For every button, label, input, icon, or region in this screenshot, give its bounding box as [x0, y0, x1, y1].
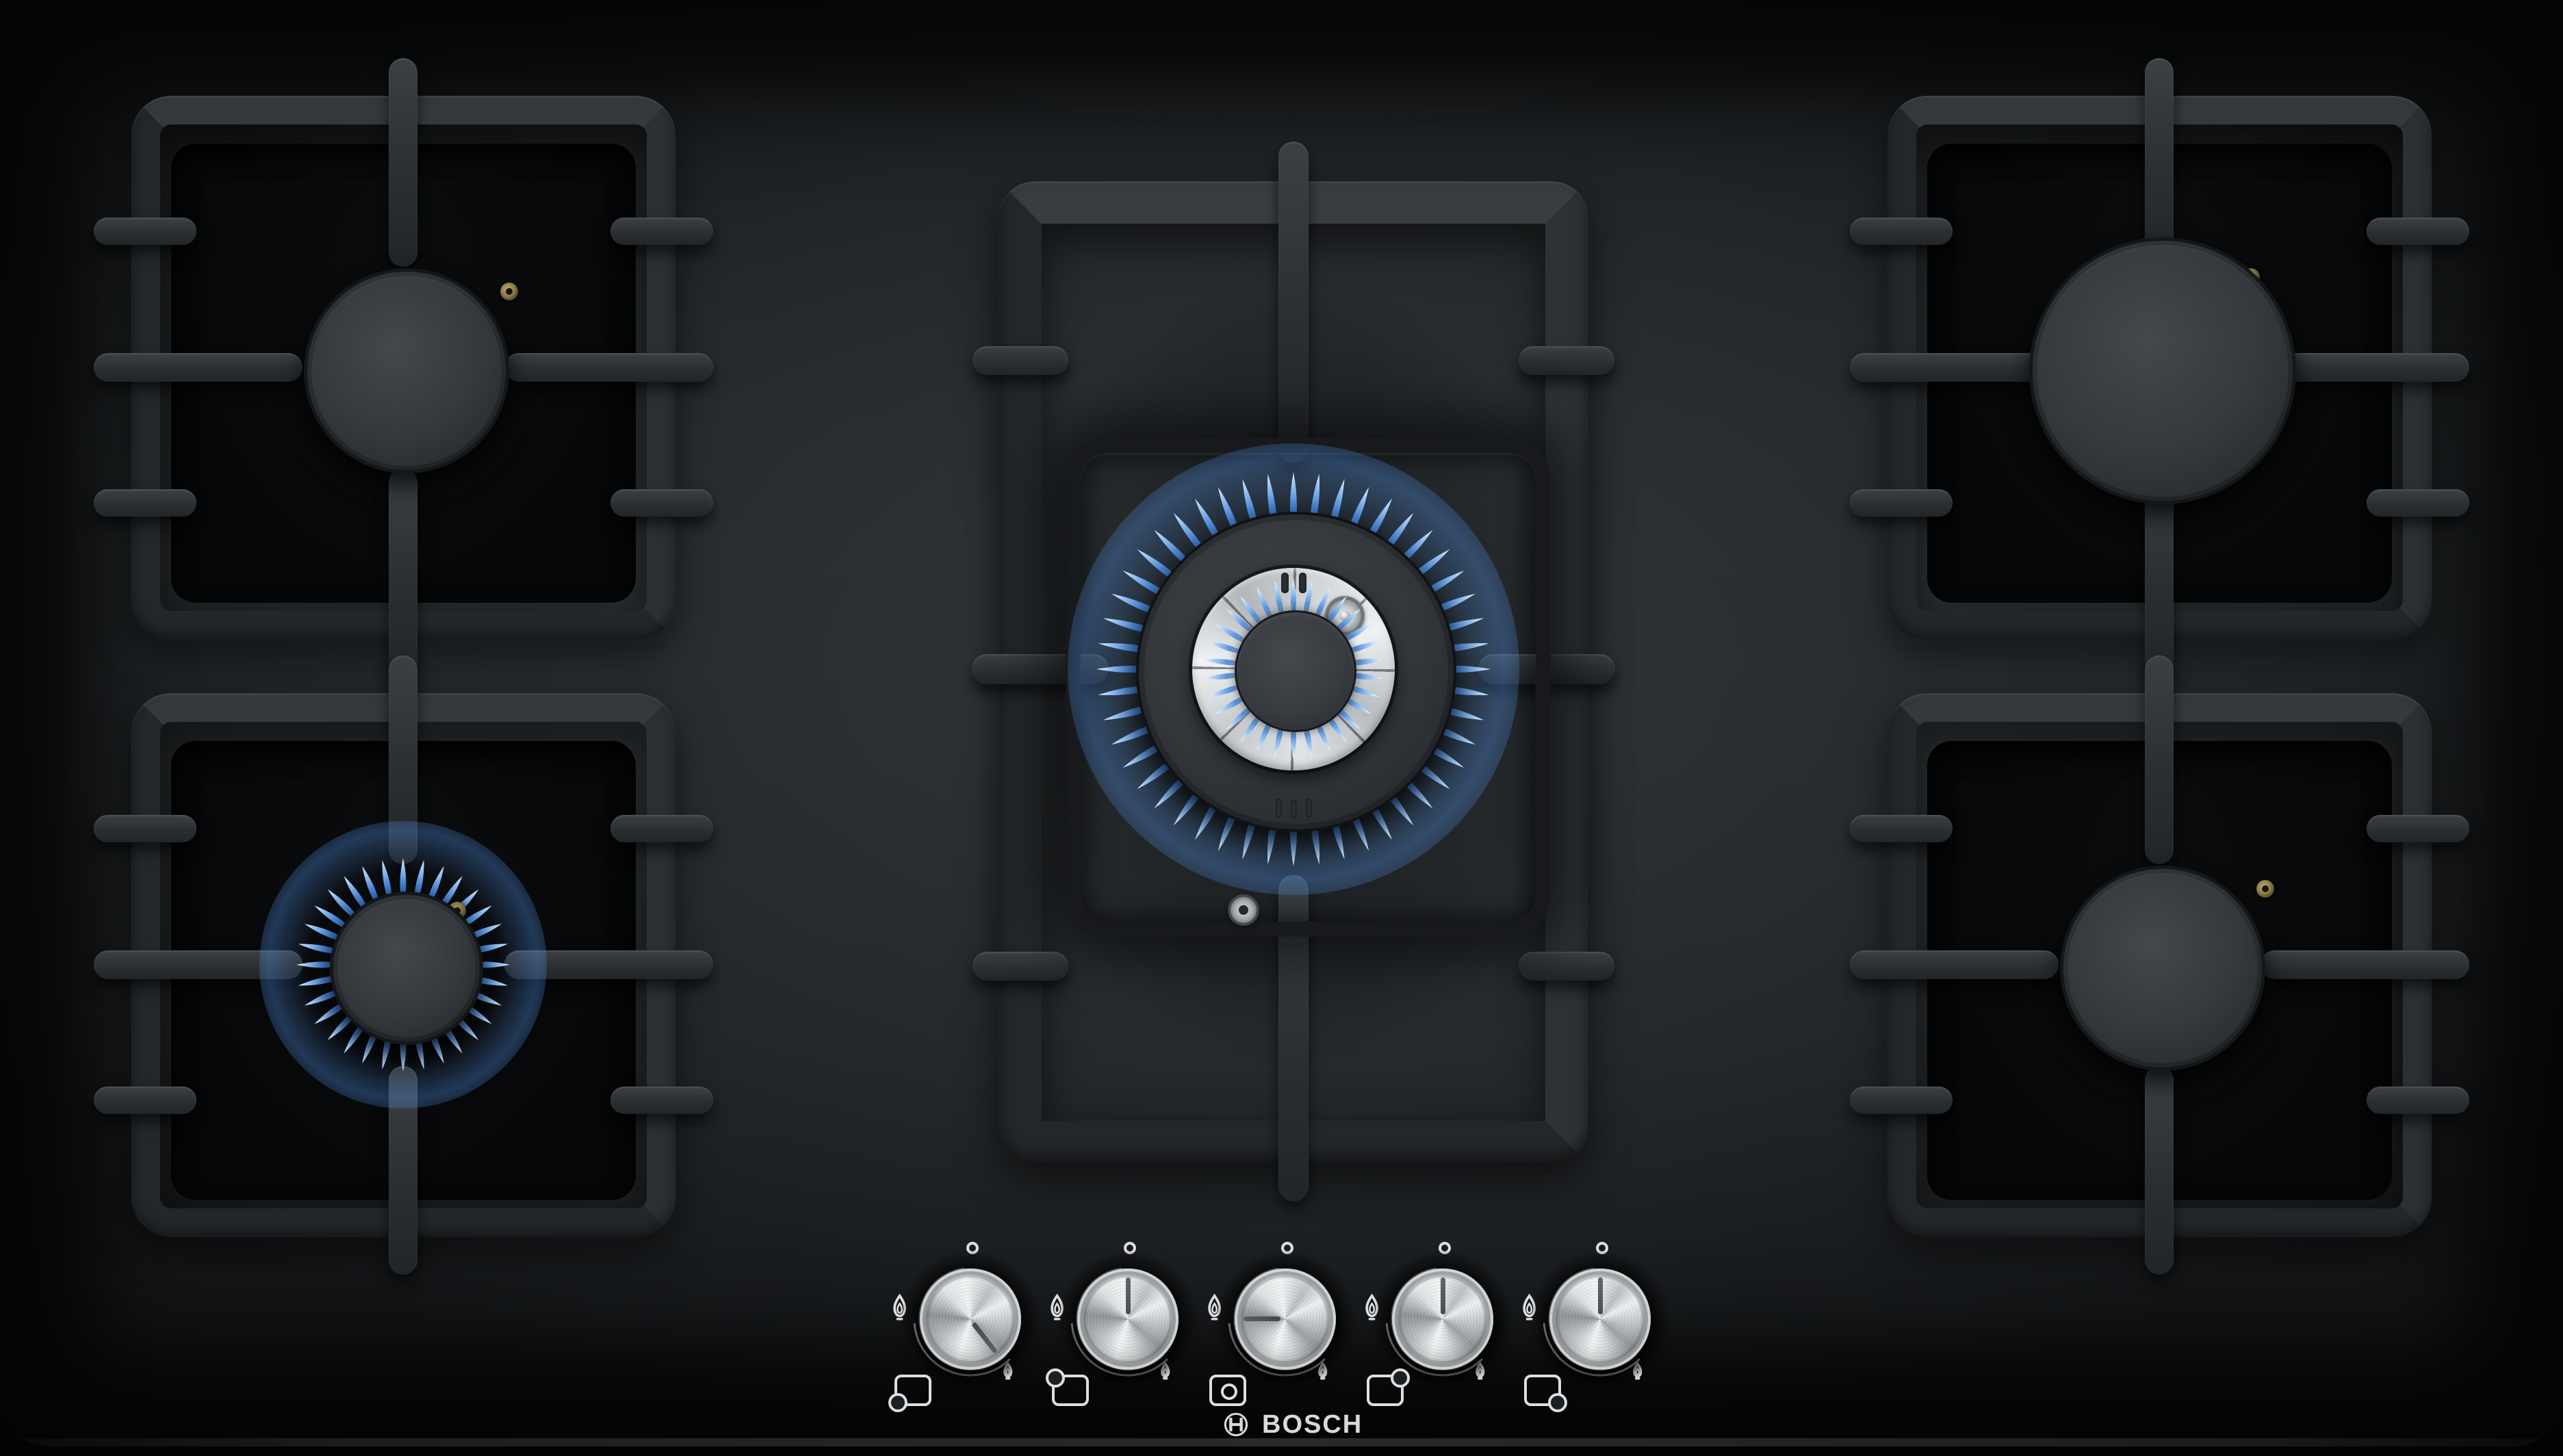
grate-foot	[94, 1087, 196, 1114]
knob-indicator	[1598, 1277, 1603, 1314]
grate-front-left	[131, 693, 675, 1237]
grate-foot	[2367, 218, 2469, 245]
burner-cap-front-left	[330, 892, 483, 1045]
bosch-wordmark: BOSCH	[1262, 1411, 1363, 1438]
burner-position-icon-front-left	[894, 1375, 931, 1406]
control-knob-back-left[interactable]	[1077, 1269, 1179, 1370]
grate-foot	[1519, 952, 1614, 980]
control-knob-front-left[interactable]	[920, 1269, 1021, 1370]
burner-cap-back-right	[2029, 237, 2296, 504]
position-dot	[1221, 1383, 1237, 1400]
position-dot	[888, 1393, 907, 1412]
crown-notch	[1291, 800, 1297, 819]
grate-foot	[610, 489, 713, 517]
grate-foot	[94, 489, 196, 517]
position-dot	[1548, 1393, 1567, 1412]
grate-foot	[1519, 346, 1614, 375]
grate-foot	[973, 346, 1068, 375]
spark-igniter-icon	[1228, 894, 1259, 926]
knob-indicator	[1441, 1277, 1445, 1314]
grate-bar	[1850, 353, 2059, 382]
grate-bar	[1278, 142, 1309, 463]
grate-foot	[2367, 815, 2469, 842]
center-wok-zone	[999, 181, 1588, 1163]
knob-indicator	[972, 1321, 999, 1353]
grate-foot	[2367, 489, 2469, 517]
burner-position-icon-back-right	[1367, 1375, 1404, 1406]
burner-cap-front-right	[2060, 866, 2265, 1071]
igniter-icon	[2256, 880, 2274, 898]
knob-unit-back-right	[1354, 1230, 1532, 1408]
knob-indicator	[1126, 1277, 1131, 1314]
grate-foot	[973, 952, 1068, 980]
grate-foot	[1850, 1087, 1953, 1114]
burner-position-icon-back-left	[1052, 1375, 1089, 1406]
grate-foot	[1850, 815, 1953, 842]
grate-bar	[389, 58, 417, 267]
grate-bar	[2145, 58, 2174, 267]
igniter-icon	[500, 283, 518, 300]
grate-back-right	[1888, 96, 2432, 640]
crown-notch	[1276, 798, 1282, 818]
burner-position-icon-front-right	[1524, 1375, 1561, 1406]
burner-position-icon-center	[1209, 1375, 1246, 1406]
hob-glass-surface: BOSCH	[0, 0, 2563, 1446]
position-dot	[1391, 1368, 1410, 1388]
grate-foot	[94, 218, 196, 245]
grate-bar	[94, 353, 302, 382]
knob-indicator	[1244, 1317, 1280, 1322]
grate-foot	[610, 218, 713, 245]
position-dot	[1046, 1368, 1065, 1388]
grate-bar	[389, 469, 417, 677]
grate-bar	[2145, 1066, 2174, 1275]
knob-unit-front-left	[881, 1230, 1059, 1408]
grate-foot	[1850, 218, 1953, 245]
control-knob-center[interactable]	[1235, 1269, 1336, 1370]
grate-foot	[610, 1087, 713, 1114]
control-knob-back-right[interactable]	[1392, 1269, 1493, 1370]
crown-notch	[1306, 798, 1312, 818]
grate-foot	[610, 815, 713, 842]
grate-front-right	[1888, 693, 2432, 1237]
grate-foot	[94, 815, 196, 842]
control-knob-front-right[interactable]	[1549, 1269, 1651, 1370]
wok-burner-cap	[1235, 610, 1356, 732]
grate-back-left	[131, 96, 675, 640]
grate-foot	[1850, 489, 1953, 517]
grate-bar	[2261, 950, 2469, 979]
burner-cap-back-left	[304, 268, 509, 473]
knob-unit-front-right	[1511, 1230, 1689, 1408]
grate-bar	[1850, 950, 2059, 979]
grate-bar	[504, 353, 713, 382]
knob-unit-back-left	[1039, 1230, 1217, 1408]
bosch-logo: BOSCH	[1222, 1411, 1363, 1438]
grate-bar	[2145, 655, 2174, 864]
knob-unit-center	[1196, 1230, 1374, 1408]
grate-foot	[2367, 1087, 2469, 1114]
bosch-emblem-icon	[1222, 1411, 1250, 1438]
